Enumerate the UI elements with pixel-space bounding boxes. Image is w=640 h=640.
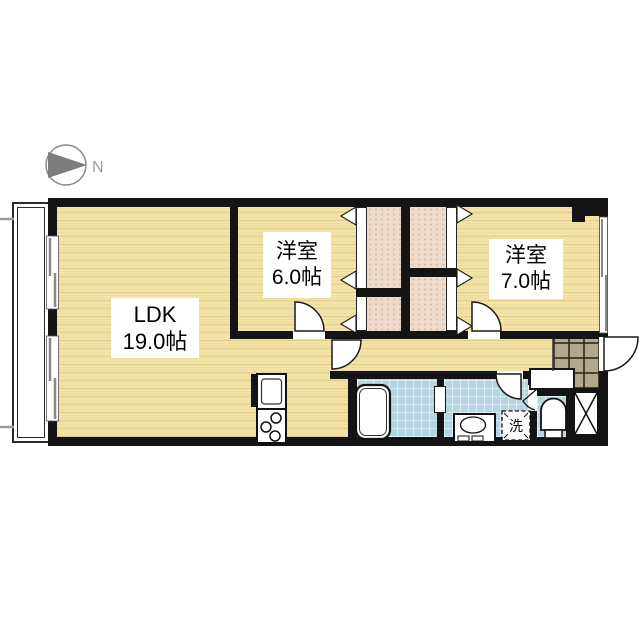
ldk-size: 19.0帖 xyxy=(123,328,188,356)
kitchen-sink xyxy=(262,379,282,404)
bedroom-west-size: 6.0帖 xyxy=(272,265,322,291)
bedroom-west-name: 洋室 xyxy=(276,239,318,265)
window-west-2 xyxy=(47,336,59,421)
ldk-label: LDK 19.0帖 xyxy=(111,298,199,358)
door-leaf-toilet xyxy=(523,389,537,410)
ldk-name: LDK xyxy=(134,301,177,329)
window-east xyxy=(600,217,608,333)
bedroom-east-size: 7.0帖 xyxy=(501,269,551,295)
north-arrow-icon xyxy=(48,152,87,178)
compass-label: N xyxy=(92,159,104,176)
door-arc-bedroom-east xyxy=(472,302,501,331)
bedroom-east-label: 洋室 7.0帖 xyxy=(489,239,563,299)
kitchen-counter xyxy=(257,374,286,443)
window-west-1 xyxy=(47,236,59,309)
door-arc-washroom xyxy=(496,374,521,399)
door-arc-ldk-hall xyxy=(332,340,361,369)
shaft-x-icon xyxy=(575,393,597,434)
floor-plan: N xyxy=(0,0,640,640)
vanity-sink xyxy=(454,414,495,442)
bathtub xyxy=(356,385,390,439)
toilet xyxy=(541,399,566,439)
door-arc-entrance xyxy=(604,337,638,371)
fixtures-layer: N xyxy=(0,0,640,640)
bedroom-east-name: 洋室 xyxy=(505,243,547,269)
closet-east-fold-icons xyxy=(457,205,472,335)
laundry-label: 洗 xyxy=(502,416,530,436)
bedroom-west-label: 洋室 6.0帖 xyxy=(263,232,331,298)
closet-west-fold-icons xyxy=(341,207,356,333)
door-arc-bedroom-west xyxy=(295,302,324,331)
